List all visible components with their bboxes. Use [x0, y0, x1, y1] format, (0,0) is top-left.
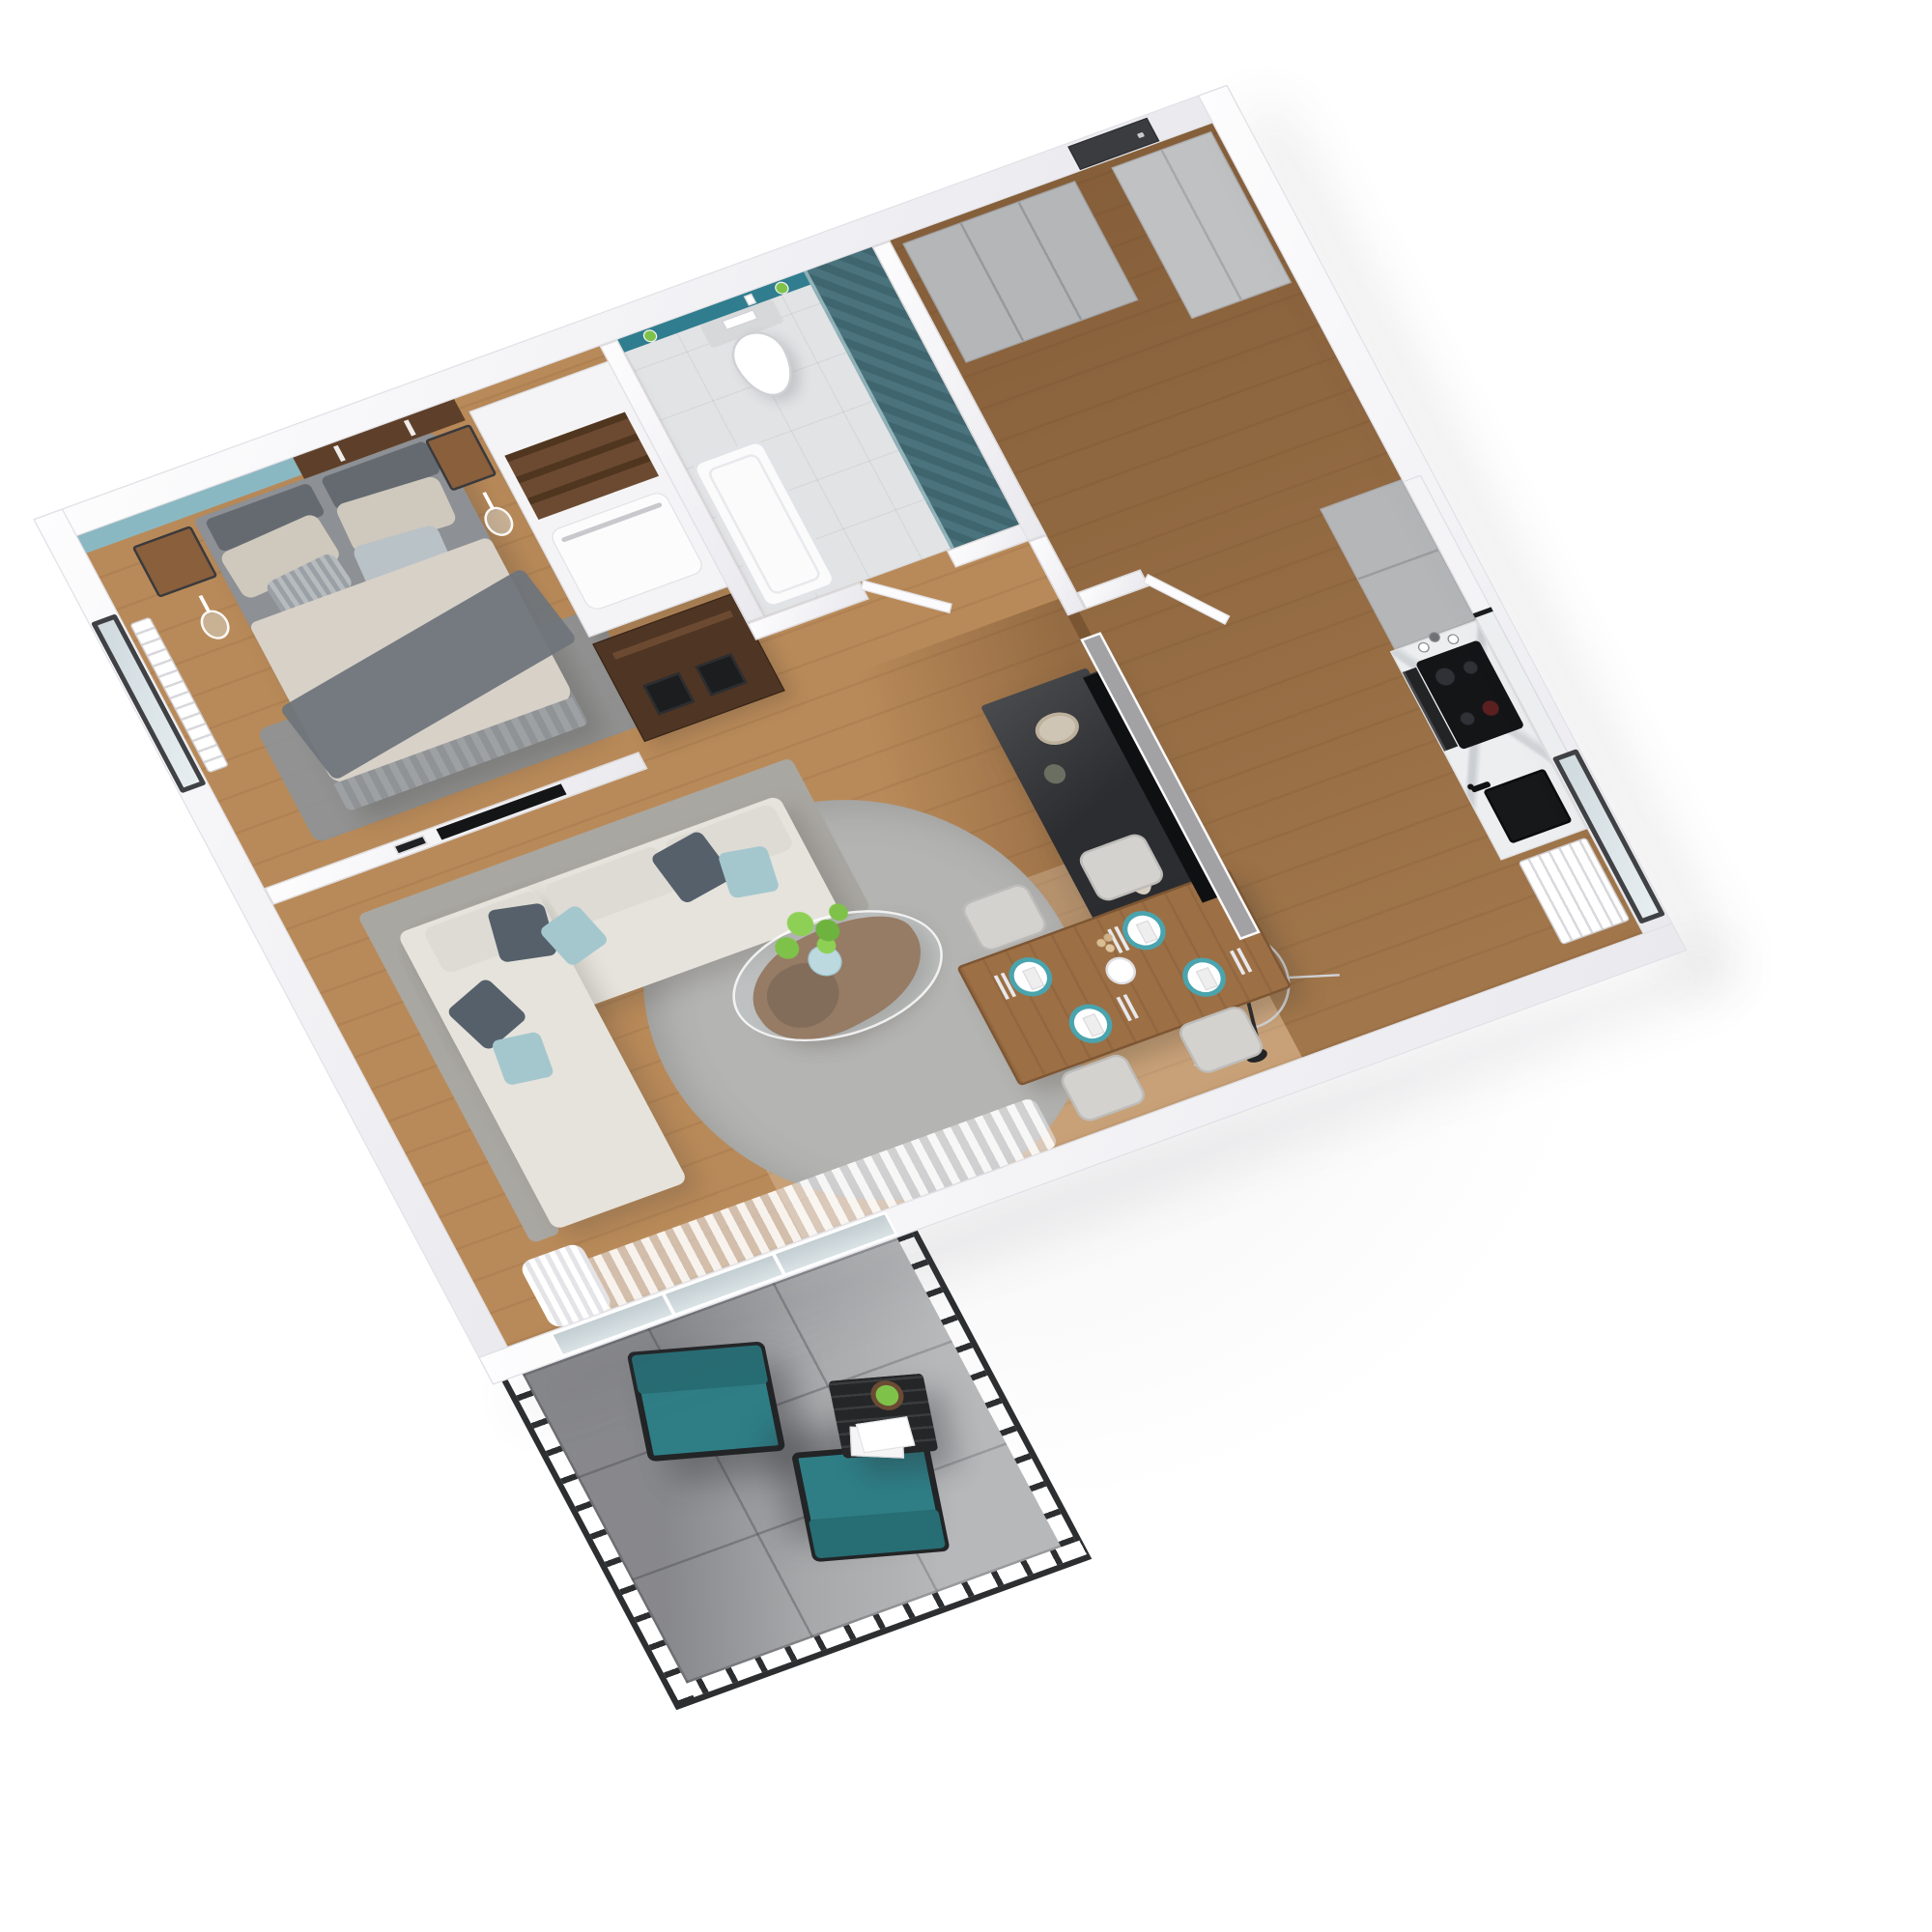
teal-lounge-chair-2: [791, 1441, 951, 1562]
wardrobe-hanging-clothes: [548, 490, 706, 612]
storage-box-1: [642, 672, 695, 716]
balcony-magazines: [849, 1427, 904, 1459]
teal-lounge-chair-1: [627, 1341, 786, 1462]
floorplan-stage: [0, 0, 1932, 1932]
storage-box-2: [695, 653, 747, 696]
